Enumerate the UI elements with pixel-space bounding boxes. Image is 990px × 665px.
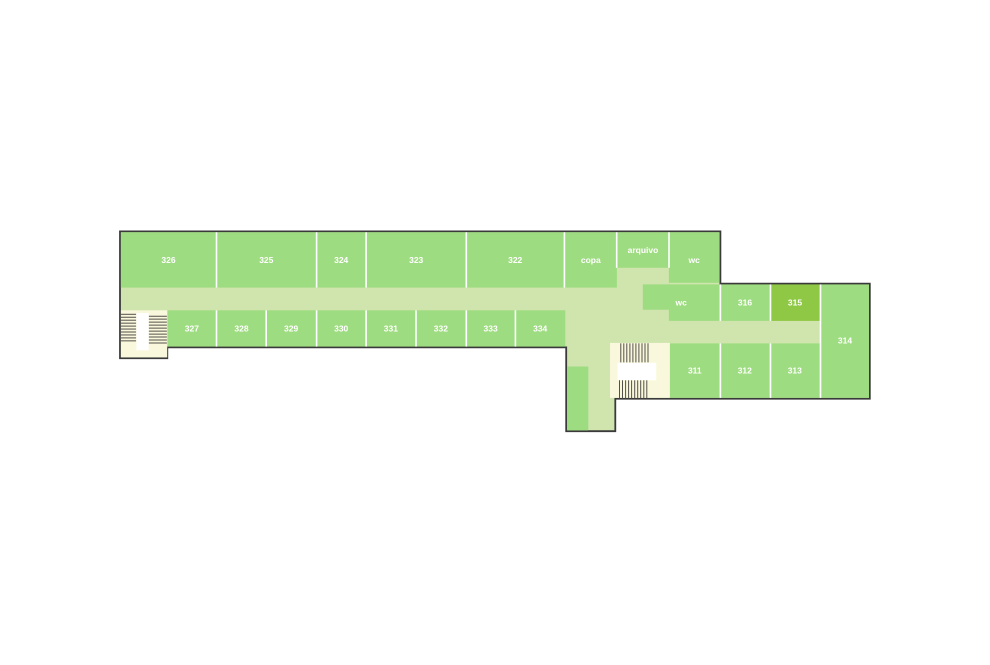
svg-text:323: 323 [409,255,423,265]
svg-text:copa: copa [581,255,601,265]
svg-text:334: 334 [533,324,547,334]
svg-text:332: 332 [434,324,448,334]
svg-text:327: 327 [185,324,199,334]
svg-text:324: 324 [334,255,348,265]
svg-text:322: 322 [508,255,522,265]
svg-text:wc: wc [675,298,688,308]
svg-text:330: 330 [334,324,348,334]
svg-text:313: 313 [788,366,802,376]
svg-text:329: 329 [284,324,298,334]
svg-text:316: 316 [738,298,752,308]
svg-text:333: 333 [484,324,498,334]
svg-text:326: 326 [161,255,175,265]
svg-text:arquivo: arquivo [628,245,659,255]
svg-text:312: 312 [738,366,752,376]
svg-text:325: 325 [259,255,273,265]
svg-text:311: 311 [688,366,702,376]
svg-text:wc: wc [688,255,701,265]
svg-text:328: 328 [234,324,248,334]
svg-text:314: 314 [838,336,852,346]
svg-text:331: 331 [384,324,398,334]
svg-text:315: 315 [788,298,802,308]
